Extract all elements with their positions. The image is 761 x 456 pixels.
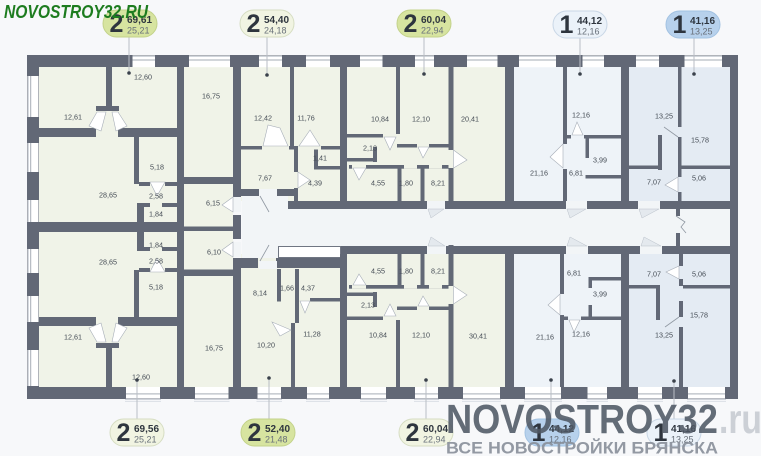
svg-text:4,39: 4,39 <box>308 179 322 188</box>
svg-text:2: 2 <box>404 10 418 38</box>
svg-text:28,65: 28,65 <box>99 191 117 200</box>
svg-text:20,41: 20,41 <box>461 115 479 124</box>
svg-text:22,94: 22,94 <box>421 26 444 36</box>
svg-text:13,25: 13,25 <box>655 112 673 121</box>
svg-text:2: 2 <box>248 419 262 447</box>
svg-text:6,81: 6,81 <box>567 269 581 278</box>
svg-text:52,40: 52,40 <box>265 424 290 435</box>
svg-text:3,99: 3,99 <box>593 156 607 165</box>
svg-text:69,56: 69,56 <box>134 424 159 435</box>
svg-text:16,75: 16,75 <box>202 92 220 101</box>
svg-text:2,13: 2,13 <box>363 144 377 153</box>
svg-text:12,16: 12,16 <box>572 330 590 339</box>
svg-text:2,58: 2,58 <box>149 192 163 201</box>
svg-text:12,10: 12,10 <box>412 115 430 124</box>
svg-text:22,94: 22,94 <box>423 435 446 445</box>
svg-text:ВСЕ НОВОСТРОЙКИ БРЯНСКА: ВСЕ НОВОСТРОЙКИ БРЯНСКА <box>446 439 718 456</box>
svg-text:1,80: 1,80 <box>399 267 413 276</box>
svg-text:2: 2 <box>247 10 261 38</box>
svg-text:21,16: 21,16 <box>536 333 554 342</box>
svg-text:7,07: 7,07 <box>647 270 661 279</box>
svg-text:.ru: .ru <box>719 396 761 442</box>
svg-text:2: 2 <box>406 419 420 447</box>
svg-text:12,16: 12,16 <box>572 111 590 120</box>
svg-text:1,80: 1,80 <box>399 179 413 188</box>
svg-text:13,25: 13,25 <box>655 331 673 340</box>
svg-text:3,99: 3,99 <box>593 290 607 299</box>
svg-text:1: 1 <box>673 11 687 39</box>
svg-text:60,04: 60,04 <box>421 15 446 26</box>
svg-text:NOVOSTROY32: NOVOSTROY32 <box>446 397 718 443</box>
svg-text:16,75: 16,75 <box>205 344 223 353</box>
svg-text:1,84: 1,84 <box>149 241 163 250</box>
svg-text:10,20: 10,20 <box>257 341 275 350</box>
svg-text:15,78: 15,78 <box>690 311 708 320</box>
svg-text:21,16: 21,16 <box>530 169 548 178</box>
svg-text:41,16: 41,16 <box>690 16 715 27</box>
svg-text:4,55: 4,55 <box>371 267 385 276</box>
svg-text:4,55: 4,55 <box>371 179 385 188</box>
svg-text:8,14: 8,14 <box>253 289 267 298</box>
svg-text:12,42: 12,42 <box>254 114 272 123</box>
svg-text:5,06: 5,06 <box>692 174 706 183</box>
svg-text:12,61: 12,61 <box>64 113 82 122</box>
svg-text:5,06: 5,06 <box>692 270 706 279</box>
svg-text:11,76: 11,76 <box>297 114 314 123</box>
svg-text:12,16: 12,16 <box>577 27 600 37</box>
svg-text:12,60: 12,60 <box>132 373 150 382</box>
svg-text:7,67: 7,67 <box>258 174 272 183</box>
svg-text:28,65: 28,65 <box>99 258 117 267</box>
svg-text:10,84: 10,84 <box>371 115 389 124</box>
svg-text:2,58: 2,58 <box>149 257 163 266</box>
svg-text:60,04: 60,04 <box>423 424 448 435</box>
svg-text:NOVOSTROY32.RU: NOVOSTROY32.RU <box>4 1 149 22</box>
svg-text:1,84: 1,84 <box>149 210 163 219</box>
svg-text:13,25: 13,25 <box>690 27 713 37</box>
svg-text:11,28: 11,28 <box>303 330 320 339</box>
svg-text:6,10: 6,10 <box>207 248 221 257</box>
svg-text:8,21: 8,21 <box>431 267 445 276</box>
svg-text:1,66: 1,66 <box>280 284 294 293</box>
svg-text:4,37: 4,37 <box>301 284 315 293</box>
svg-text:7,07: 7,07 <box>647 178 661 187</box>
svg-text:30,41: 30,41 <box>469 332 487 341</box>
svg-text:12,60: 12,60 <box>134 73 152 82</box>
svg-text:10,84: 10,84 <box>369 331 387 340</box>
svg-text:6,15: 6,15 <box>206 199 220 208</box>
svg-text:44,12: 44,12 <box>577 16 602 27</box>
svg-text:12,61: 12,61 <box>64 333 82 342</box>
svg-text:15,78: 15,78 <box>691 136 709 145</box>
svg-text:12,10: 12,10 <box>412 331 430 340</box>
svg-text:1: 1 <box>560 11 574 39</box>
svg-text:24,18: 24,18 <box>264 26 287 36</box>
svg-text:2: 2 <box>117 419 131 447</box>
svg-text:6,81: 6,81 <box>569 169 583 178</box>
svg-text:2,13: 2,13 <box>361 301 375 310</box>
svg-text:25,21: 25,21 <box>127 26 150 36</box>
svg-text:21,48: 21,48 <box>265 435 288 445</box>
svg-text:5,18: 5,18 <box>150 163 164 172</box>
svg-text:54,40: 54,40 <box>264 15 289 26</box>
svg-text:8,21: 8,21 <box>431 179 445 188</box>
svg-text:5,18: 5,18 <box>149 283 163 292</box>
svg-text:25,21: 25,21 <box>134 435 157 445</box>
svg-text:1,41: 1,41 <box>313 154 327 163</box>
